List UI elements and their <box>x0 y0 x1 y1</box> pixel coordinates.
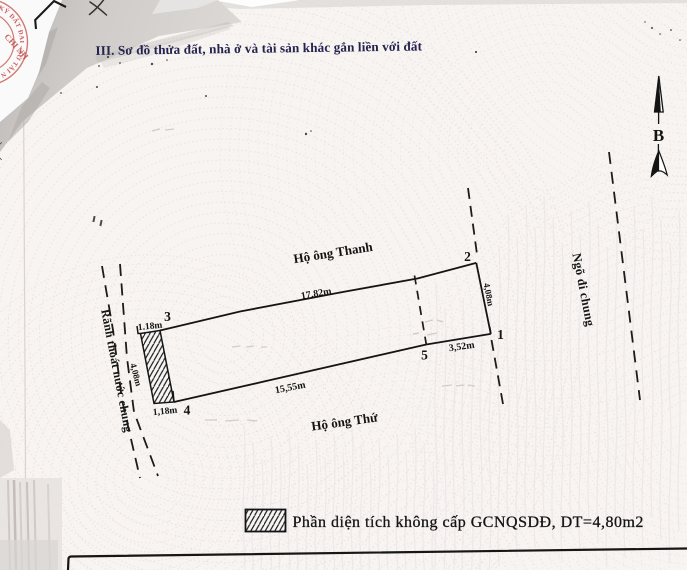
svg-text:4: 4 <box>184 403 191 418</box>
svg-text:3: 3 <box>164 309 171 324</box>
svg-text:1: 1 <box>497 327 504 342</box>
svg-text:(: ( <box>0 139 3 161</box>
svg-text:B: B <box>653 126 664 145</box>
svg-text:2: 2 <box>464 249 471 264</box>
svg-text:5: 5 <box>421 348 428 363</box>
svg-text:Phần diện tích không cấp GCNQS: Phần diện tích không cấp GCNQSDĐ, DT=4,8… <box>293 514 644 531</box>
